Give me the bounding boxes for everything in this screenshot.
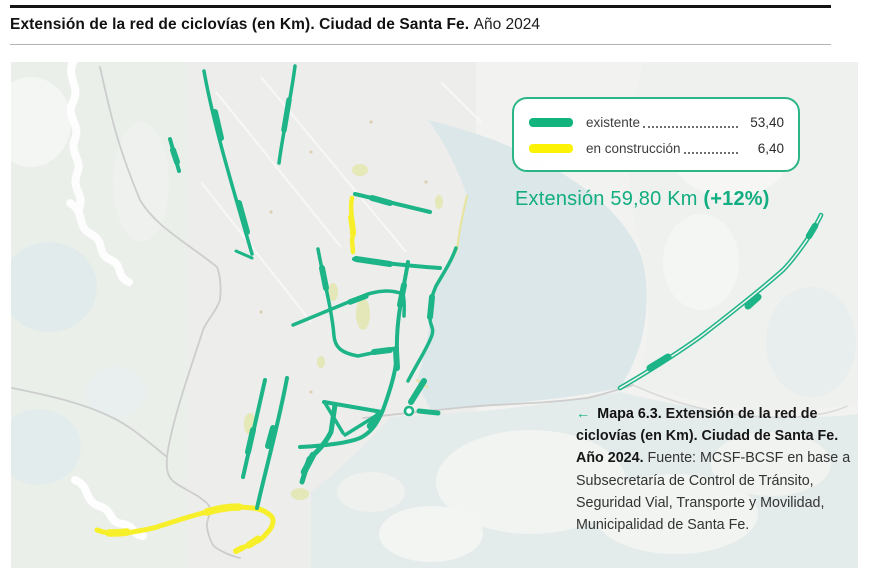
map-caption: ←Mapa 6.3. Extensión de la red de ciclov… bbox=[576, 403, 868, 536]
extension-total-text: Extensión 59,80 Km bbox=[515, 188, 698, 210]
existing-swatch bbox=[529, 118, 573, 127]
legend-item-construction: en construcción 6,40 bbox=[529, 136, 784, 162]
left-arrow-icon: ← bbox=[576, 406, 590, 422]
dotted-leader bbox=[643, 125, 738, 128]
legend-label: en construcción bbox=[586, 141, 681, 156]
dotted-leader bbox=[684, 151, 738, 154]
legend-label: existente bbox=[586, 115, 640, 130]
caption-map-number: Mapa 6.3. bbox=[597, 406, 661, 422]
extension-growth-badge: (+12%) bbox=[703, 188, 769, 210]
legend-value: 53,40 bbox=[744, 115, 784, 130]
map-legend: existente 53,40 en construcción 6,40 bbox=[512, 97, 800, 172]
legend-value: 6,40 bbox=[744, 141, 784, 156]
page-title: Extensión de la red de ciclovías (en Km)… bbox=[10, 16, 469, 33]
extension-summary: Extensión 59,80 Km (+12%) bbox=[515, 188, 835, 211]
page-title-year: Año 2024 bbox=[474, 16, 540, 33]
lane-node-circle bbox=[405, 407, 413, 415]
construction-swatch bbox=[529, 144, 573, 153]
legend-item-existing: existente 53,40 bbox=[529, 109, 784, 135]
figure-header: Extensión de la red de ciclovías (en Km)… bbox=[10, 5, 831, 45]
